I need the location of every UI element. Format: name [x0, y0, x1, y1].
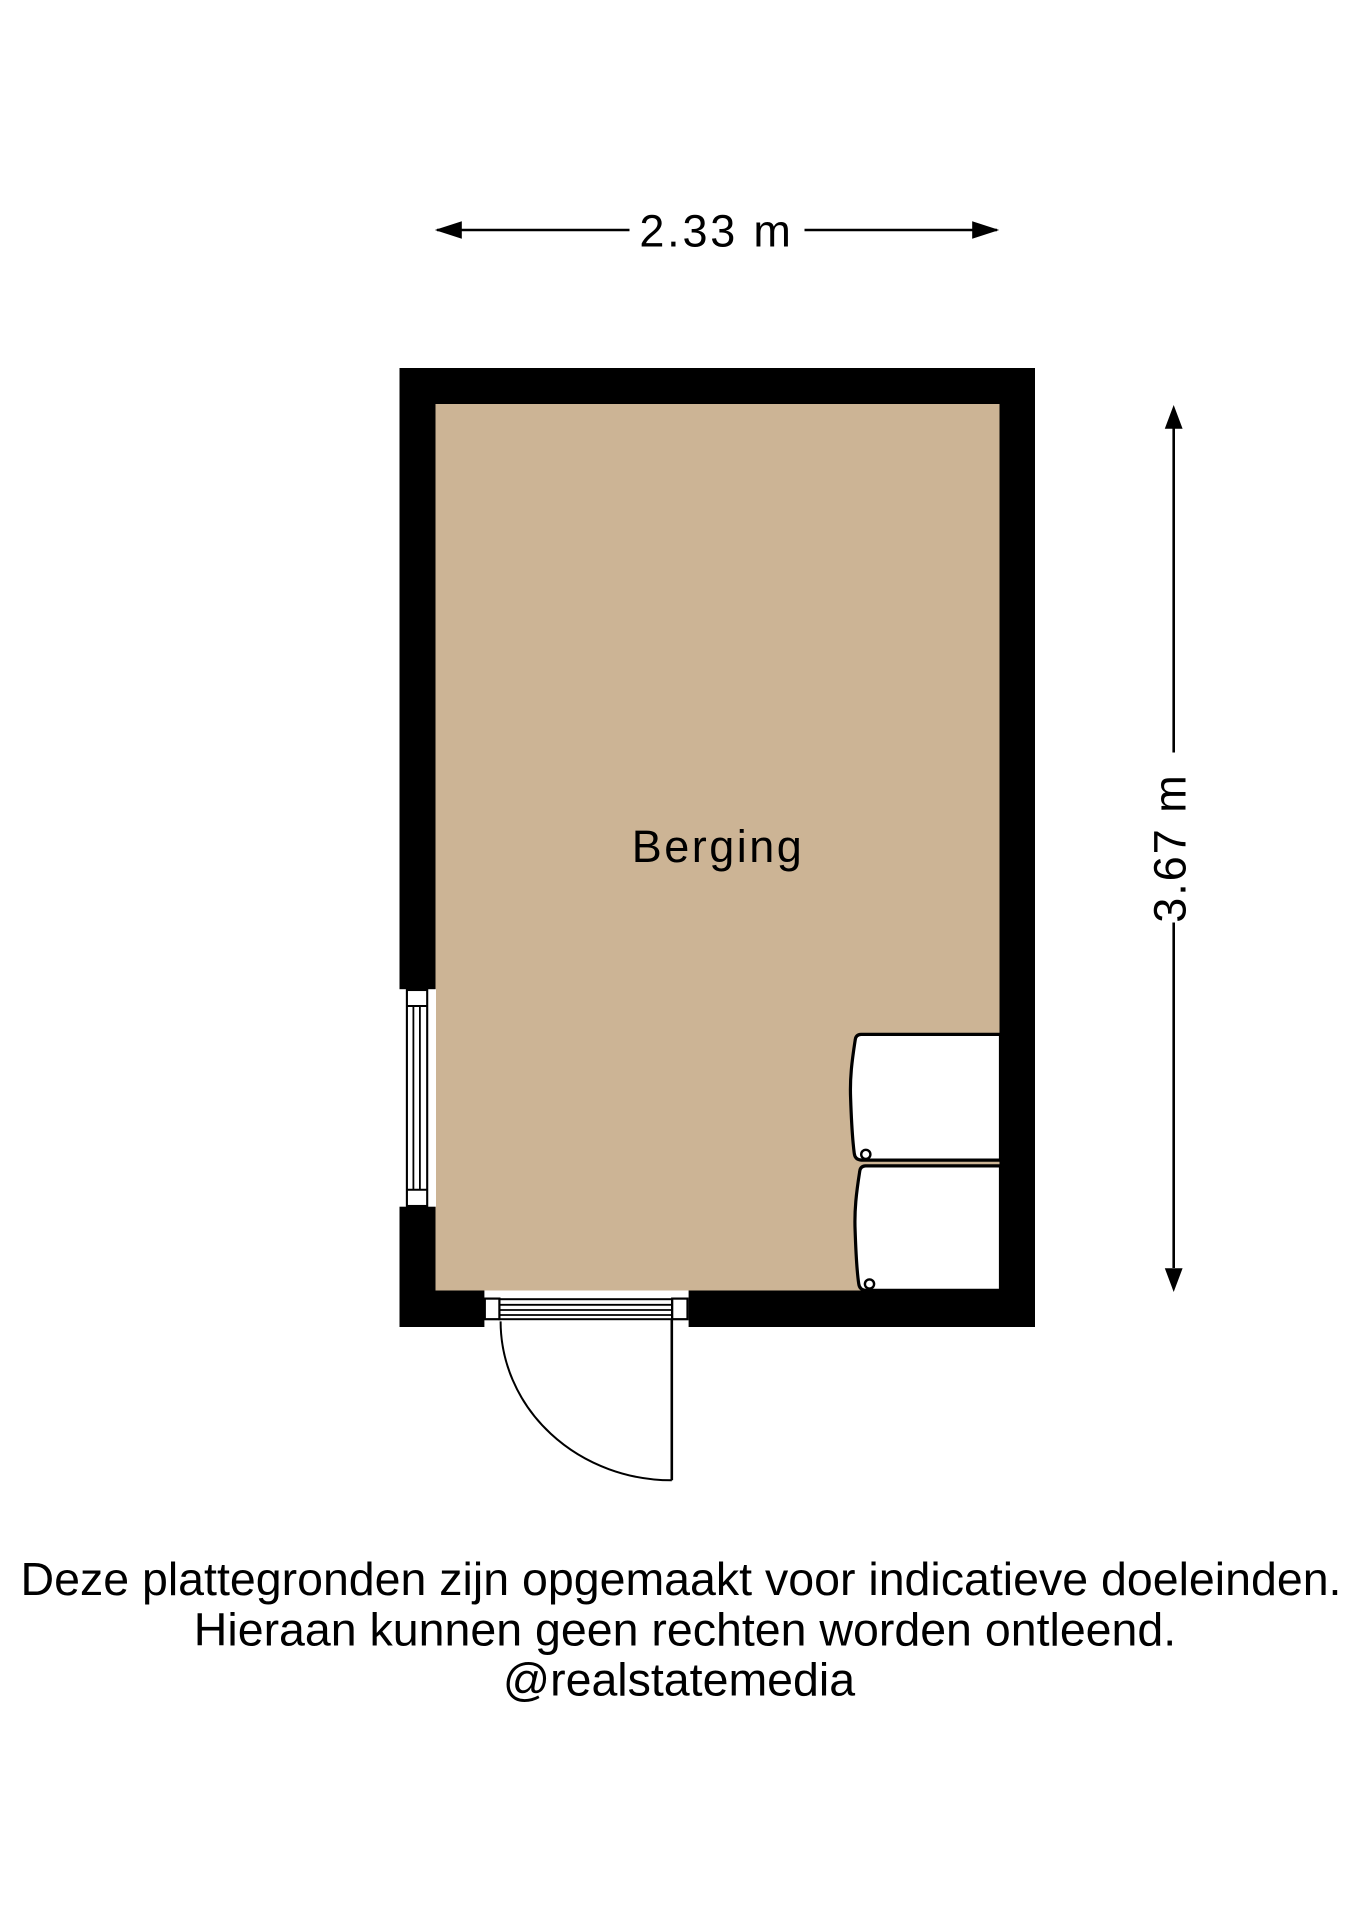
svg-text:Hieraan kunnen geen rechten wo: Hieraan kunnen geen rechten worden ontle… — [194, 1603, 1176, 1655]
svg-text:@realstatemedia: @realstatemedia — [503, 1654, 855, 1706]
svg-text:2.33 m: 2.33 m — [639, 206, 793, 257]
svg-text:Deze plattegronden zijn opgema: Deze plattegronden zijn opgemaakt voor i… — [21, 1553, 1342, 1605]
svg-text:3.67 m: 3.67 m — [1145, 773, 1196, 923]
svg-text:Berging: Berging — [632, 821, 805, 872]
